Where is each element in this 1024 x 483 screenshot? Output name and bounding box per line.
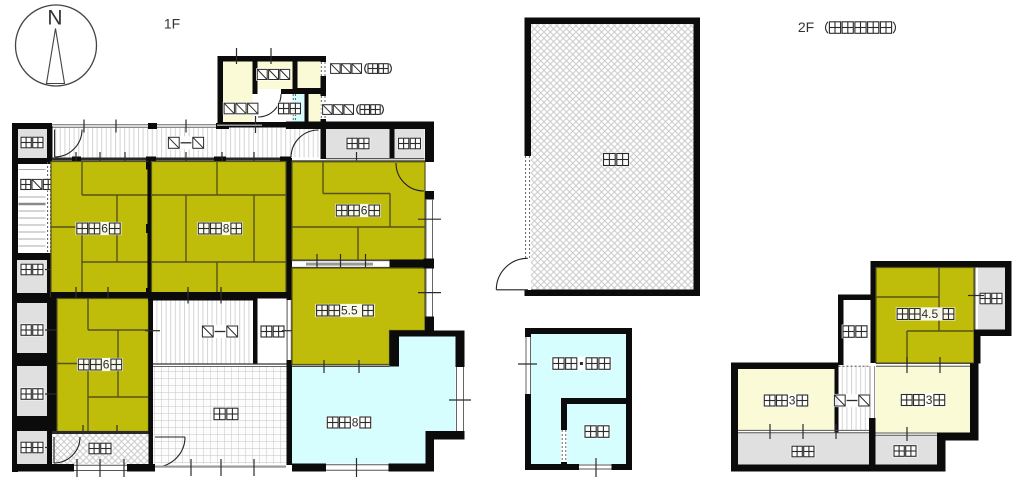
svg-text:5.5: 5.5 <box>341 304 358 318</box>
svg-text:6: 6 <box>361 204 368 218</box>
svg-text:3: 3 <box>926 393 933 407</box>
svg-text:6: 6 <box>103 358 110 372</box>
svg-text:6: 6 <box>101 222 108 236</box>
svg-text:N: N <box>47 7 62 30</box>
svg-text:8: 8 <box>352 416 359 430</box>
svg-text:2F: 2F <box>798 19 814 35</box>
svg-text:3: 3 <box>789 394 796 408</box>
svg-text:8: 8 <box>223 222 230 236</box>
svg-text:4.5: 4.5 <box>922 307 939 321</box>
svg-text:1F: 1F <box>164 16 180 32</box>
